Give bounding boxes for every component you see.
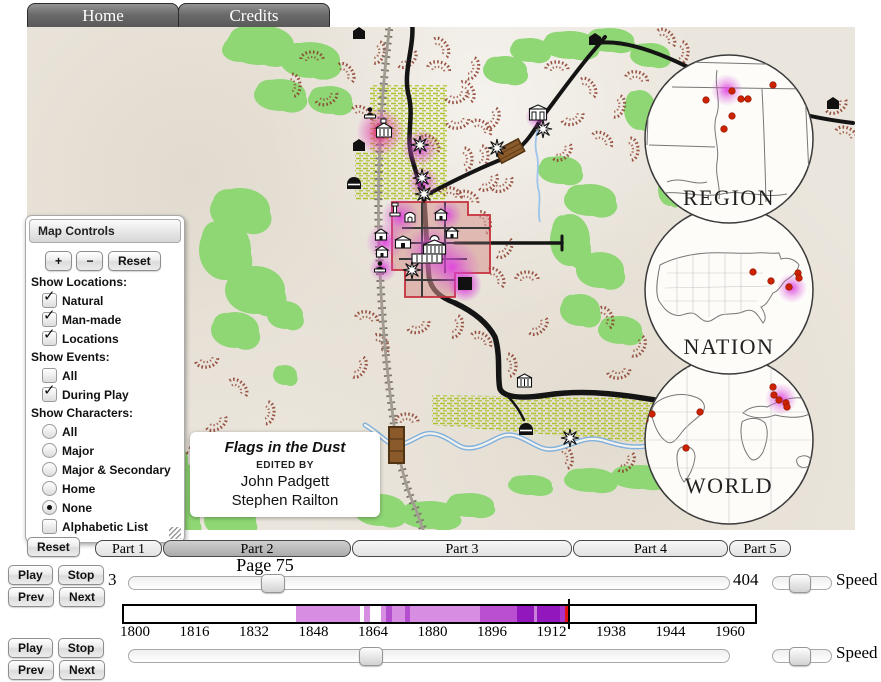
timeline-segment: [534, 606, 537, 622]
year-label: 1938: [581, 624, 641, 641]
event-star-icon[interactable]: [411, 136, 429, 154]
location-dot[interactable]: [697, 409, 704, 416]
inset-label: REGION: [683, 185, 775, 210]
page-indicator: Page 75: [180, 555, 350, 576]
time-slider-thumb[interactable]: [359, 647, 383, 666]
editor-name: John Padgett: [194, 473, 376, 490]
timeline-segment: [381, 606, 481, 622]
event-star-icon[interactable]: [415, 185, 433, 203]
location-dot[interactable]: [796, 275, 803, 282]
options-heading: Show Characters:: [31, 406, 181, 420]
speed-label-1: Speed: [836, 570, 878, 590]
hill-hachure: [579, 75, 599, 98]
stop-button-2[interactable]: Stop: [58, 638, 105, 658]
hill-hachure: [264, 402, 276, 425]
option-label: All: [62, 425, 77, 439]
radio-control[interactable]: [42, 481, 57, 496]
radio-none[interactable]: None: [42, 500, 181, 515]
speed-slider-2-thumb[interactable]: [789, 647, 811, 666]
option-label: Man-made: [62, 313, 121, 327]
part-tab-4[interactable]: Part 4: [573, 540, 728, 557]
part-tab-1[interactable]: Part 1: [95, 540, 162, 557]
map-reset-button[interactable]: Reset: [108, 251, 161, 271]
timeline-segment: [560, 606, 566, 622]
stop-button[interactable]: Stop: [58, 565, 105, 585]
bsquare-icon[interactable]: [458, 277, 472, 290]
bhouse-icon[interactable]: [353, 27, 365, 39]
location-dot[interactable]: [738, 96, 745, 103]
year-label: 1896: [462, 624, 522, 641]
resize-handle-icon[interactable]: [169, 527, 181, 539]
prev-button-2[interactable]: Prev: [8, 660, 54, 680]
inset-world[interactable]: WORLD: [642, 356, 814, 524]
checkbox-alphabetic-list[interactable]: Alphabetic List: [42, 519, 181, 534]
inset-label: WORLD: [685, 473, 773, 498]
radio-all[interactable]: All: [42, 424, 181, 439]
part-tab-5[interactable]: Part 5: [729, 540, 791, 557]
option-label: Major: [62, 444, 94, 458]
location-dot[interactable]: [768, 278, 775, 285]
event-star-icon[interactable]: [413, 169, 431, 187]
edited-by-label: EDITED BY: [194, 460, 376, 471]
location-dot[interactable]: [770, 384, 777, 391]
location-dot[interactable]: [770, 82, 777, 89]
hill-hachure: [460, 79, 478, 103]
radio-major-secondary[interactable]: Major & Secondary: [42, 462, 181, 477]
checkbox-during-play[interactable]: ✓During Play: [42, 387, 181, 402]
map-controls-panel: Map Controls + − Reset Show Locations:✓N…: [25, 215, 185, 543]
hill-hachure: [466, 57, 482, 81]
time-slider[interactable]: [128, 649, 730, 663]
inset-label: NATION: [684, 334, 775, 359]
page-slider[interactable]: [128, 576, 730, 590]
radio-control[interactable]: [42, 500, 57, 515]
hill-hachure: [205, 415, 229, 434]
location-dot[interactable]: [745, 96, 752, 103]
location-dot[interactable]: [771, 392, 778, 399]
hill-hachure: [546, 62, 568, 72]
location-dot[interactable]: [683, 445, 690, 452]
location-dot[interactable]: [729, 113, 736, 120]
option-label: Major & Secondary: [62, 463, 171, 477]
hill-hachure: [516, 272, 538, 281]
option-label: All: [62, 369, 77, 383]
hill-hachure: [433, 35, 453, 58]
hill-hachure: [196, 356, 219, 368]
event-heat-glow: [369, 254, 397, 282]
checkbox-natural[interactable]: ✓Natural: [42, 293, 181, 308]
playback-reset-button[interactable]: Reset: [27, 537, 80, 557]
timeline-segment: [296, 606, 361, 622]
prev-button[interactable]: Prev: [8, 587, 54, 607]
event-star-icon[interactable]: [534, 120, 552, 138]
location-dot[interactable]: [750, 269, 757, 276]
event-star-icon[interactable]: [561, 429, 579, 447]
timeline-segment: [517, 606, 559, 622]
speed-slider-2[interactable]: [772, 649, 832, 663]
rowhouse-icon[interactable]: [412, 254, 442, 263]
hill-hachure: [396, 413, 418, 423]
option-label: Locations: [62, 332, 119, 346]
hill-hachure: [427, 60, 450, 73]
checkbox-man-made[interactable]: ✓Man-made: [42, 312, 181, 327]
inset-region[interactable]: REGION: [645, 55, 813, 223]
hill-hachure: [407, 319, 431, 335]
checkbox-control[interactable]: ✓: [42, 387, 57, 402]
playback-row1-top: Play Stop: [8, 565, 104, 585]
hill-hachure: [608, 368, 631, 380]
location-dot[interactable]: [729, 88, 736, 95]
year-label: 1944: [641, 624, 701, 641]
playback-row2-bottom: Prev Next: [8, 660, 105, 680]
timeline-segment: [386, 606, 392, 622]
hill-hachure: [561, 112, 585, 128]
chapel-icon[interactable]: [405, 213, 415, 223]
hill-hachure: [625, 70, 648, 84]
location-dot[interactable]: [784, 404, 791, 411]
editor-name: Stephen Railton: [194, 492, 376, 509]
playback-row2-top: Play Stop: [8, 638, 104, 658]
checked-mark-icon: ✓: [43, 287, 56, 305]
next-button-2[interactable]: Next: [59, 660, 105, 680]
map-controls-title: Map Controls: [29, 219, 181, 243]
hill-hachure: [628, 138, 638, 160]
hill-hachure: [351, 356, 369, 380]
radio-control[interactable]: [42, 443, 57, 458]
speed-slider-1-thumb[interactable]: [789, 574, 811, 593]
tab-credits[interactable]: Credits: [178, 3, 330, 29]
hill-hachure: [528, 317, 551, 338]
radio-home[interactable]: Home: [42, 481, 181, 496]
zoom-in-button[interactable]: +: [45, 251, 72, 271]
inset-nation[interactable]: NATION: [645, 206, 813, 374]
store2-icon[interactable]: [529, 105, 547, 120]
hill-hachure: [355, 310, 378, 323]
tab-home[interactable]: Home: [27, 3, 179, 29]
checkbox-locations[interactable]: ✓Locations: [42, 331, 181, 346]
hill-hachure: [506, 354, 517, 377]
radio-control[interactable]: [42, 462, 57, 477]
location-dot[interactable]: [776, 397, 783, 404]
hill-hachure: [463, 148, 473, 170]
speed-label-2: Speed: [836, 643, 878, 663]
year-label: 1960: [700, 624, 760, 641]
year-label: 1848: [284, 624, 344, 641]
railroad-bridge[interactable]: [389, 427, 404, 463]
speed-slider-1[interactable]: [772, 576, 832, 590]
plantation-icon[interactable]: [517, 374, 532, 387]
timeline-heatmap[interactable]: [122, 604, 757, 624]
options-heading: Show Events:: [31, 350, 181, 364]
play-button[interactable]: Play: [8, 565, 53, 585]
location-dot[interactable]: [721, 126, 728, 133]
hill-hachure: [471, 117, 494, 137]
location-dot[interactable]: [786, 284, 793, 291]
checked-mark-icon: ✓: [43, 325, 56, 343]
year-label: 1816: [165, 624, 225, 641]
location-dot[interactable]: [703, 97, 710, 104]
hill-hachure: [450, 315, 465, 339]
hill-hachure: [592, 129, 615, 149]
event-star-icon[interactable]: [403, 261, 421, 279]
bhouse-icon[interactable]: [827, 97, 839, 109]
checkbox-all[interactable]: All: [42, 368, 181, 383]
hill-hachure: [484, 107, 502, 131]
option-label: Alphabetic List: [62, 520, 148, 534]
page-min-label: 3: [108, 570, 117, 590]
checked-mark-icon: ✓: [43, 381, 56, 399]
part-tab-3[interactable]: Part 3: [352, 540, 572, 557]
novel-title: Flags in the Dust: [194, 439, 376, 456]
novel-credits-box: Flags in the Dust EDITED BY John Padgett…: [190, 432, 380, 517]
hill-hachure: [492, 176, 515, 195]
hill-hachure: [446, 117, 469, 130]
play-button-2[interactable]: Play: [8, 638, 53, 658]
page: Home Credits WORLDNATIONREGION Map Contr…: [0, 0, 881, 682]
year-label: 1880: [403, 624, 463, 641]
year-label: 1912: [522, 624, 582, 641]
checked-mark-icon: ✓: [43, 306, 56, 324]
page-max-label: 404: [733, 570, 759, 590]
page-slider-thumb[interactable]: [261, 574, 285, 593]
hill-hachure: [445, 90, 469, 105]
checkbox-control[interactable]: [42, 519, 57, 534]
option-label: Home: [62, 482, 95, 496]
year-label: 1864: [343, 624, 403, 641]
checkbox-control[interactable]: ✓: [42, 331, 57, 346]
year-label: 1800: [105, 624, 165, 641]
option-label: During Play: [62, 388, 129, 402]
checked-mark-icon: [47, 505, 52, 510]
map-controls-options: Show Locations:✓Natural✓Man-made✓Locatio…: [29, 275, 181, 534]
hill-hachure: [228, 376, 250, 398]
option-label: None: [62, 501, 92, 515]
radio-control[interactable]: [42, 424, 57, 439]
option-label: Natural: [62, 294, 103, 308]
year-label: 1832: [224, 624, 284, 641]
hill-hachure: [835, 124, 855, 141]
next-button[interactable]: Next: [59, 587, 105, 607]
radio-major[interactable]: Major: [42, 443, 181, 458]
event-star-icon[interactable]: [488, 139, 506, 157]
timeline-segment: [480, 606, 517, 622]
timeline-segment: [364, 606, 370, 622]
playback-row1-bottom: Prev Next: [8, 587, 105, 607]
zoom-out-button[interactable]: −: [76, 251, 103, 271]
timeline-segment: [405, 606, 411, 622]
